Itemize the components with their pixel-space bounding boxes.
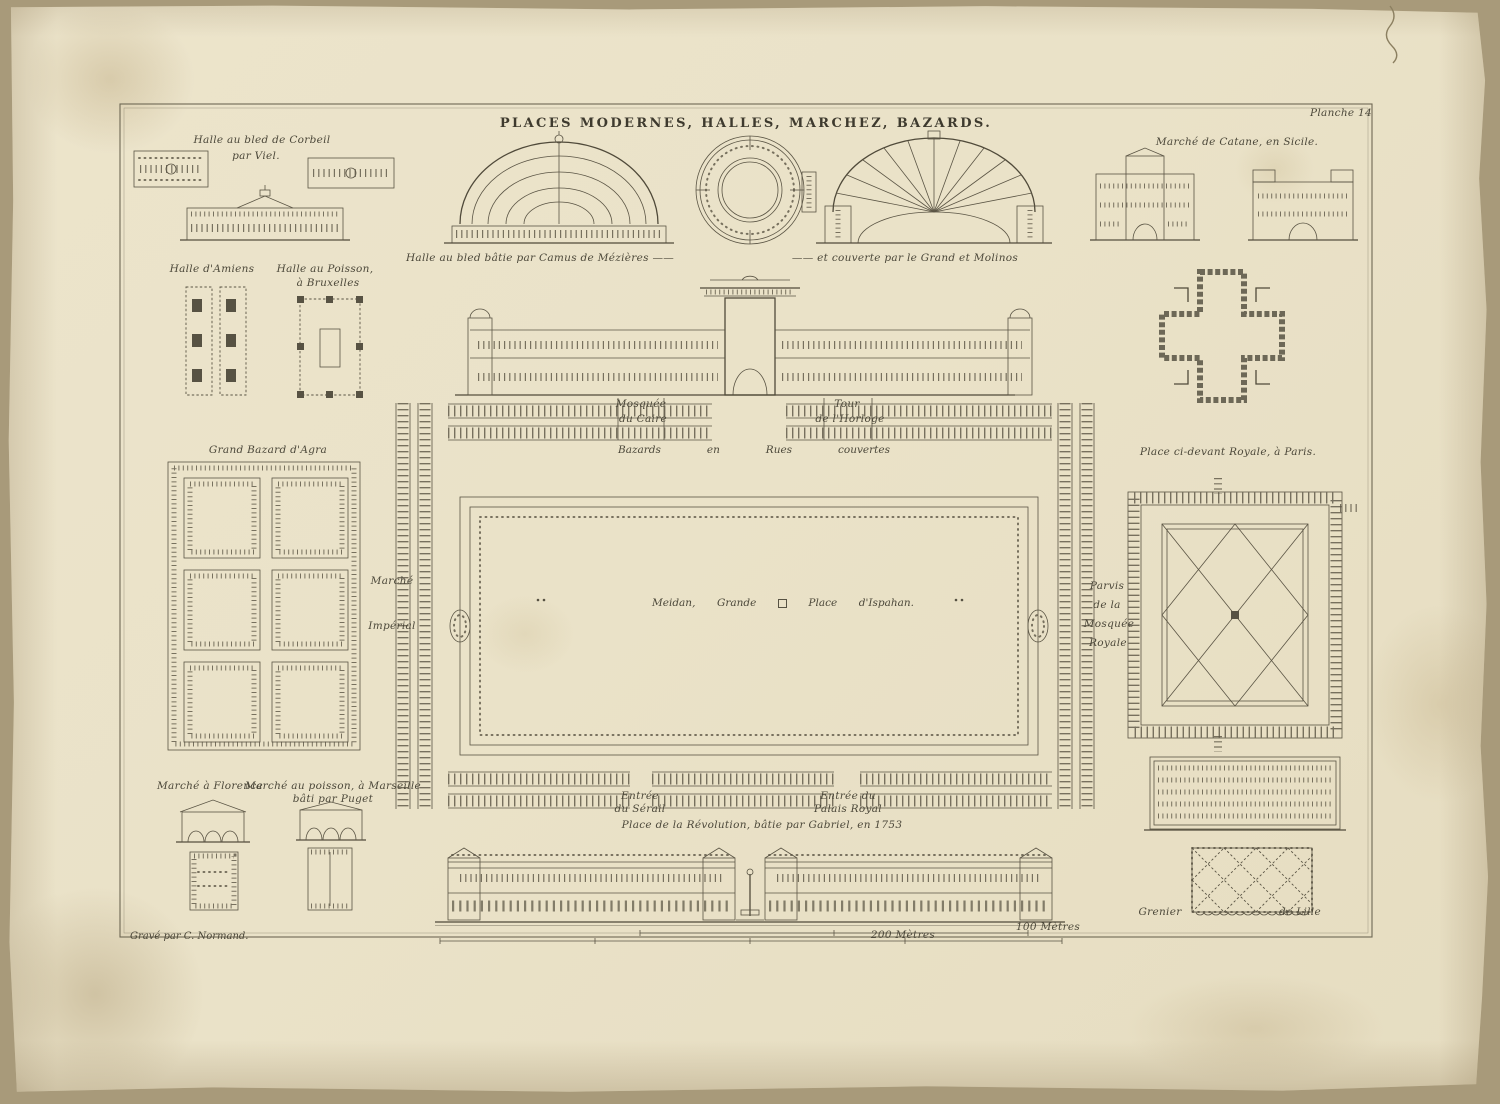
caption-serail-1: Entrée (621, 790, 659, 802)
caption-amiens: Halle d'Amiens (170, 263, 255, 275)
caption-meidan-word: d'Ispahan. (859, 597, 914, 609)
drawing-corbeil-plans-elevation (134, 151, 394, 240)
caption-marseille-1: Marché au poisson, à Marseille (245, 780, 421, 792)
caption-palais-2: Palais Royal (814, 803, 882, 815)
caption-catane: Marché de Catane, en Sicile. (1156, 136, 1318, 148)
caption-meidan-word: Meidan, (652, 597, 695, 609)
caption-marche-2: Impérial (368, 620, 415, 632)
engraver-credit: Gravé par C. Normand. (130, 931, 248, 942)
caption-marche-1: Marché (371, 575, 414, 587)
caption-revolution: Place de la Révolution, bâtie par Gabrie… (622, 819, 903, 831)
caption-grenier-left: Grenier (1138, 906, 1181, 918)
caption-parvis-4: Royale (1089, 637, 1127, 649)
caption-meidan-row: Meidan, Grande Place d'Ispahan. (652, 597, 914, 609)
engraved-plate-scan: { "palette": {"paper": "#e9e1c8", "ink":… (0, 0, 1500, 1103)
caption-mosquee-2: du Caire (619, 413, 667, 425)
plate-frame (120, 104, 1372, 937)
caption-scale-200: 200 Mètres (871, 929, 935, 941)
drawing-grenier-facade (1144, 757, 1346, 830)
drawing-florence-elevation-plan (176, 800, 250, 910)
caption-bazards-word: couvertes (838, 444, 890, 456)
drawing-halle-au-bled-circular-plan (696, 136, 816, 244)
caption-agra: Grand Bazard d'Agra (209, 444, 327, 456)
caption-bazards-word: Bazards (618, 444, 661, 456)
caption-meidan-word: Place (808, 597, 837, 609)
drawing-agra-bazaar-plan (168, 462, 360, 750)
drawing-dome-section (816, 131, 1052, 243)
drawing-catane-elevation-2 (1248, 170, 1358, 240)
paper-thread (1386, 6, 1396, 63)
caption-corbeil: Halle au bled de Corbeil (194, 134, 331, 146)
caption-halle-bled-left: Halle au bled bâtie par Camus de Mézière… (406, 252, 674, 264)
caption-grenier-right: de Lille (1279, 906, 1321, 918)
caption-serail-2: du Sérail (615, 803, 666, 815)
caption-parvis-3: Mosquée (1084, 618, 1134, 630)
drawing-bruxelles-plan (297, 296, 363, 398)
drawing-halle-au-bled-dome-elevation (444, 131, 674, 243)
drawing-catane-elevation-1 (1090, 148, 1200, 240)
caption-bazards-word: en (707, 444, 720, 456)
caption-scale-100: 100 Mètres (1016, 921, 1080, 933)
caption-meidan-word: Grande (717, 597, 756, 609)
caption-tour-1: Tour (834, 398, 860, 410)
meidan-center-monument (778, 599, 787, 608)
drawing-revolution-elevation (435, 848, 1065, 926)
caption-marseille-2: bâti par Puget (293, 793, 373, 805)
plate-number: Planche 14 (1310, 107, 1372, 119)
caption-parvis-2: de la (1093, 599, 1120, 611)
caption-place-royale: Place ci-devant Royale, à Paris. (1140, 446, 1316, 458)
caption-corbeil-sub: par Viel. (232, 150, 280, 162)
caption-bruxelles-1: Halle au Poisson, (277, 263, 374, 275)
drawing-grenier-plan (1192, 848, 1312, 915)
caption-bruxelles-2: à Bruxelles (297, 277, 360, 289)
caption-parvis-1: Parvis (1090, 580, 1124, 592)
caption-bazards-row: Bazards en Rues couvertes (618, 444, 890, 456)
caption-halle-bled-right: —— et couverte par le Grand et Molinos (792, 252, 1018, 264)
drawing-cross-market-plan (1162, 272, 1282, 400)
caption-palais-1: Entrée du (820, 790, 876, 802)
drawing-place-royale-plan (1128, 478, 1358, 752)
caption-tour-2: de l'Horloge (815, 413, 884, 425)
caption-mosquee-1: Mosquée (616, 398, 666, 410)
drawing-marseille-elevation-plan (296, 802, 366, 910)
drawing-meidan-mosque-elevation (455, 276, 1032, 440)
drawing-amiens-plan (186, 287, 246, 395)
caption-bazards-word: Rues (766, 444, 792, 456)
plate-title: PLACES MODERNES, HALLES, MARCHEZ, BAZARD… (500, 116, 992, 131)
